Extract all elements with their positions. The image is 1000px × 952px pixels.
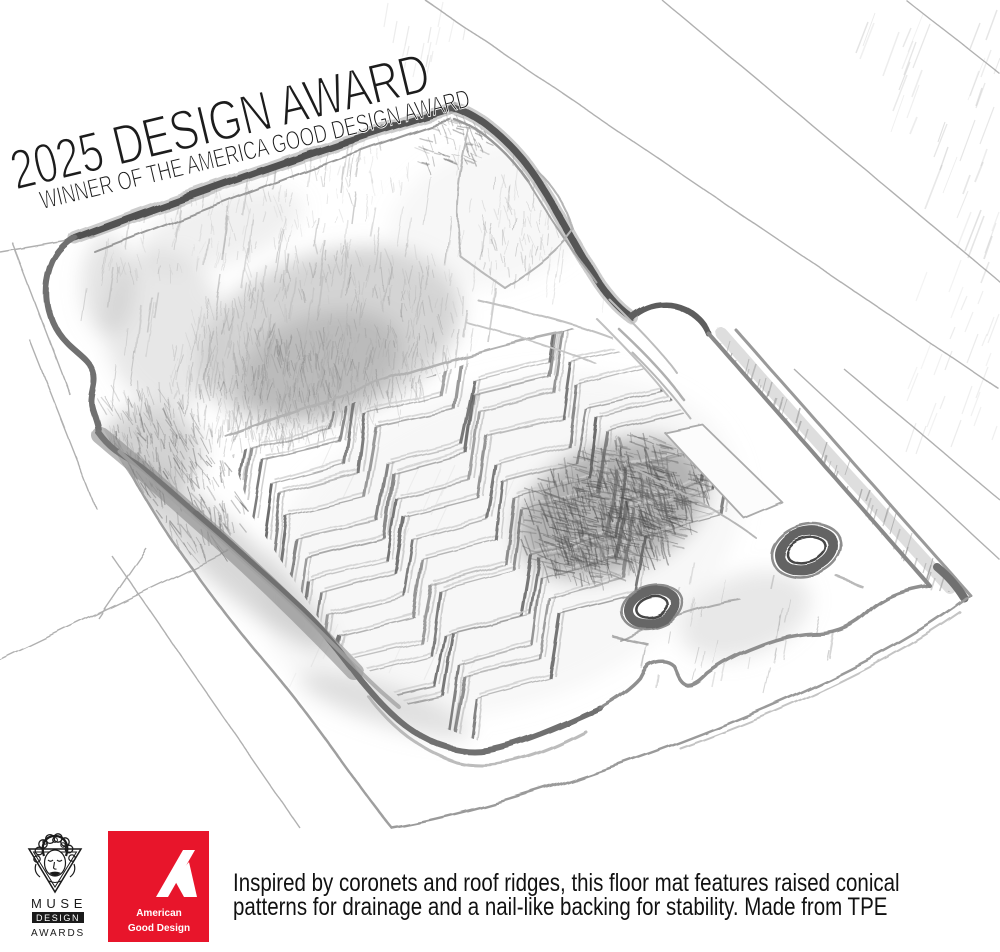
svg-text:Good Design: Good Design	[128, 923, 190, 934]
svg-text:American: American	[136, 908, 182, 919]
svg-text:MUSE: MUSE	[31, 896, 87, 911]
svg-text:DESIGN: DESIGN	[36, 913, 80, 923]
svg-text:AWARDS: AWARDS	[31, 928, 85, 939]
